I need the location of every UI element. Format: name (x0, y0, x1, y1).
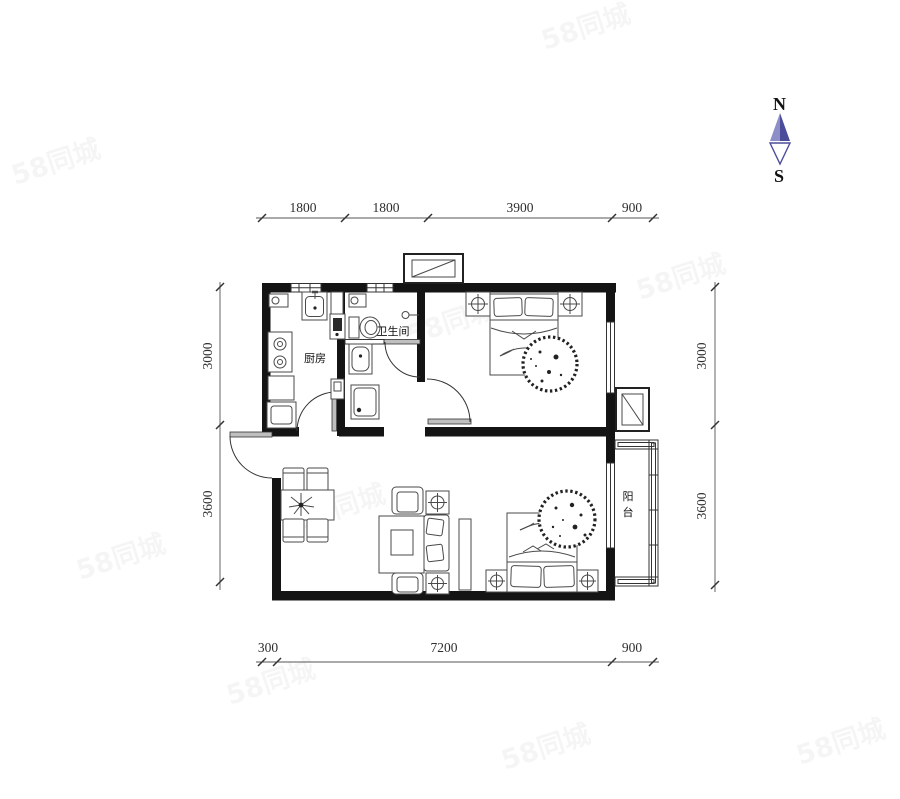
flue-right (616, 388, 649, 431)
door-arc (297, 392, 336, 431)
dim-label: 3600 (200, 490, 215, 517)
entry-door (230, 432, 272, 478)
watermark: 58同城 (223, 654, 320, 712)
living-room (281, 468, 598, 594)
flue-top (404, 254, 463, 283)
dim-label: 300 (258, 640, 279, 655)
half-wall (345, 340, 384, 345)
wall-segment (425, 427, 615, 437)
stove-symbol (268, 332, 292, 372)
dim-label: 3600 (694, 492, 709, 519)
washbasin-symbol (349, 344, 372, 374)
dim-label: 900 (622, 200, 643, 215)
compass: N S (770, 94, 790, 186)
bedroom-top (466, 292, 582, 391)
fridge-symbol (267, 402, 296, 428)
kitchen-sink-symbol (302, 292, 327, 320)
kitchen-label: 厨房 (304, 352, 326, 365)
side-table-lamp-symbol (426, 573, 449, 594)
balcony-label: 阳 (623, 490, 634, 503)
door-leaf (384, 340, 420, 345)
wall-segment (606, 436, 615, 463)
window (367, 284, 393, 293)
compass-needle-icon (770, 113, 780, 141)
dim-label: 3000 (200, 342, 215, 369)
nightstand-lamp-symbol (466, 292, 490, 316)
door-leaf (428, 419, 471, 424)
wall-segment (393, 283, 616, 293)
watermark-layer: 58同城 58同城 58同城 58同城 58同城 58同城 58同城 58同城 … (8, 0, 890, 777)
floorplan-drawing: 58同城 58同城 58同城 58同城 58同城 58同城 58同城 58同城 … (0, 0, 900, 799)
bathroom: 卫生间 (349, 294, 419, 419)
rug-symbol (523, 337, 577, 391)
toilet-symbol (349, 317, 380, 338)
dim-label: 3000 (694, 342, 709, 369)
rug-symbol (539, 491, 595, 547)
door-leaf (230, 432, 272, 437)
wall-segment (606, 292, 615, 322)
wall-segment (339, 427, 384, 437)
dimensions-right: 3000 3600 (694, 282, 719, 592)
dim-label: 3900 (507, 200, 534, 215)
door-arc (230, 436, 272, 478)
armchair-symbol (392, 573, 423, 594)
dim-label: 1800 (373, 200, 400, 215)
dim-label: 900 (622, 640, 643, 655)
washing-machine-symbol (351, 385, 379, 419)
compass-needle-icon (770, 143, 790, 164)
nightstand-lamp-symbol (558, 292, 582, 316)
tv-panel-symbol (459, 519, 471, 590)
dimensions-bottom: 300 7200 900 (256, 640, 659, 666)
balcony: 阳 台 (615, 440, 658, 586)
dim-label: 1800 (290, 200, 317, 215)
balcony-label: 台 (623, 505, 634, 519)
watermark: 58同城 (538, 0, 635, 57)
door-arc (427, 379, 470, 422)
window (607, 463, 615, 548)
watermark: 58同城 (73, 529, 170, 587)
dim-label: 7200 (431, 640, 458, 655)
wall-segment (606, 393, 615, 436)
wall-segment (272, 478, 281, 600)
dimensions-top: 1800 1800 3900 900 (256, 200, 659, 222)
nightstand-lamp-symbol (577, 570, 598, 592)
sofa-symbol (424, 515, 449, 571)
floorplan-page: 58同城 58同城 58同城 58同城 58同城 58同城 58同城 58同城 … (0, 0, 900, 799)
nightstand-lamp-symbol (486, 570, 507, 592)
dining-chair-symbol (283, 468, 328, 491)
watermark: 58同城 (793, 714, 890, 772)
window (607, 322, 615, 393)
cabinet-symbol (269, 294, 288, 307)
bathroom-label: 卫生间 (377, 324, 410, 338)
bedroom-door (427, 379, 471, 424)
cabinet-symbol (268, 376, 294, 400)
watermark: 58同城 (498, 719, 595, 777)
window (291, 284, 321, 293)
coffee-table-symbol (379, 516, 424, 573)
compass-needle-icon (780, 113, 790, 141)
compass-south-label: S (774, 166, 784, 186)
wall-segment (417, 292, 425, 382)
watermark: 58同城 (8, 134, 105, 192)
balcony-rail (615, 440, 658, 586)
dimensions-left: 3000 3600 (200, 282, 224, 590)
armchair-symbol (392, 487, 423, 514)
wall-segment (321, 283, 367, 293)
cabinet-symbol (349, 294, 366, 307)
side-table-lamp-symbol (426, 491, 449, 514)
compass-north-label: N (773, 94, 786, 114)
dining-table-symbol (281, 490, 334, 520)
